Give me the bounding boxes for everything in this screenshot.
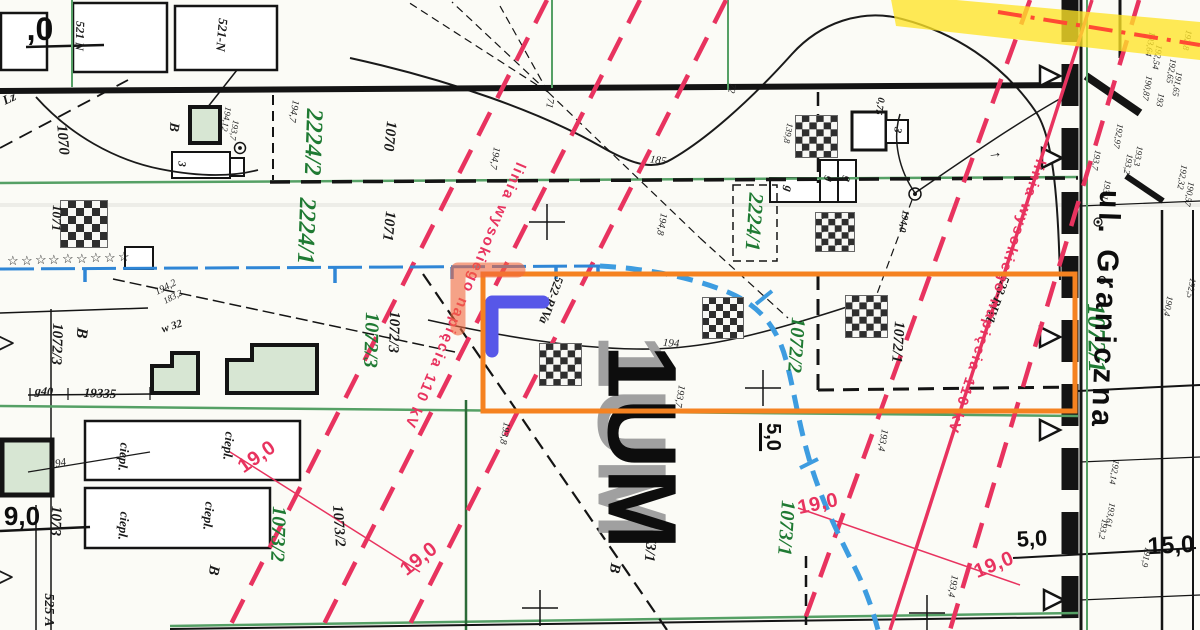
map-overlays xyxy=(0,0,1200,630)
selection-rectangle[interactable] xyxy=(483,274,1075,411)
yellow-highlight xyxy=(890,0,1200,60)
selection-overlay xyxy=(458,270,1075,411)
corner-marker-blue[interactable] xyxy=(492,302,543,351)
cadastral-map: ☆☆☆☆☆☆☆☆☆ 2224/22224/12224/11072/31072/2… xyxy=(0,0,1200,630)
